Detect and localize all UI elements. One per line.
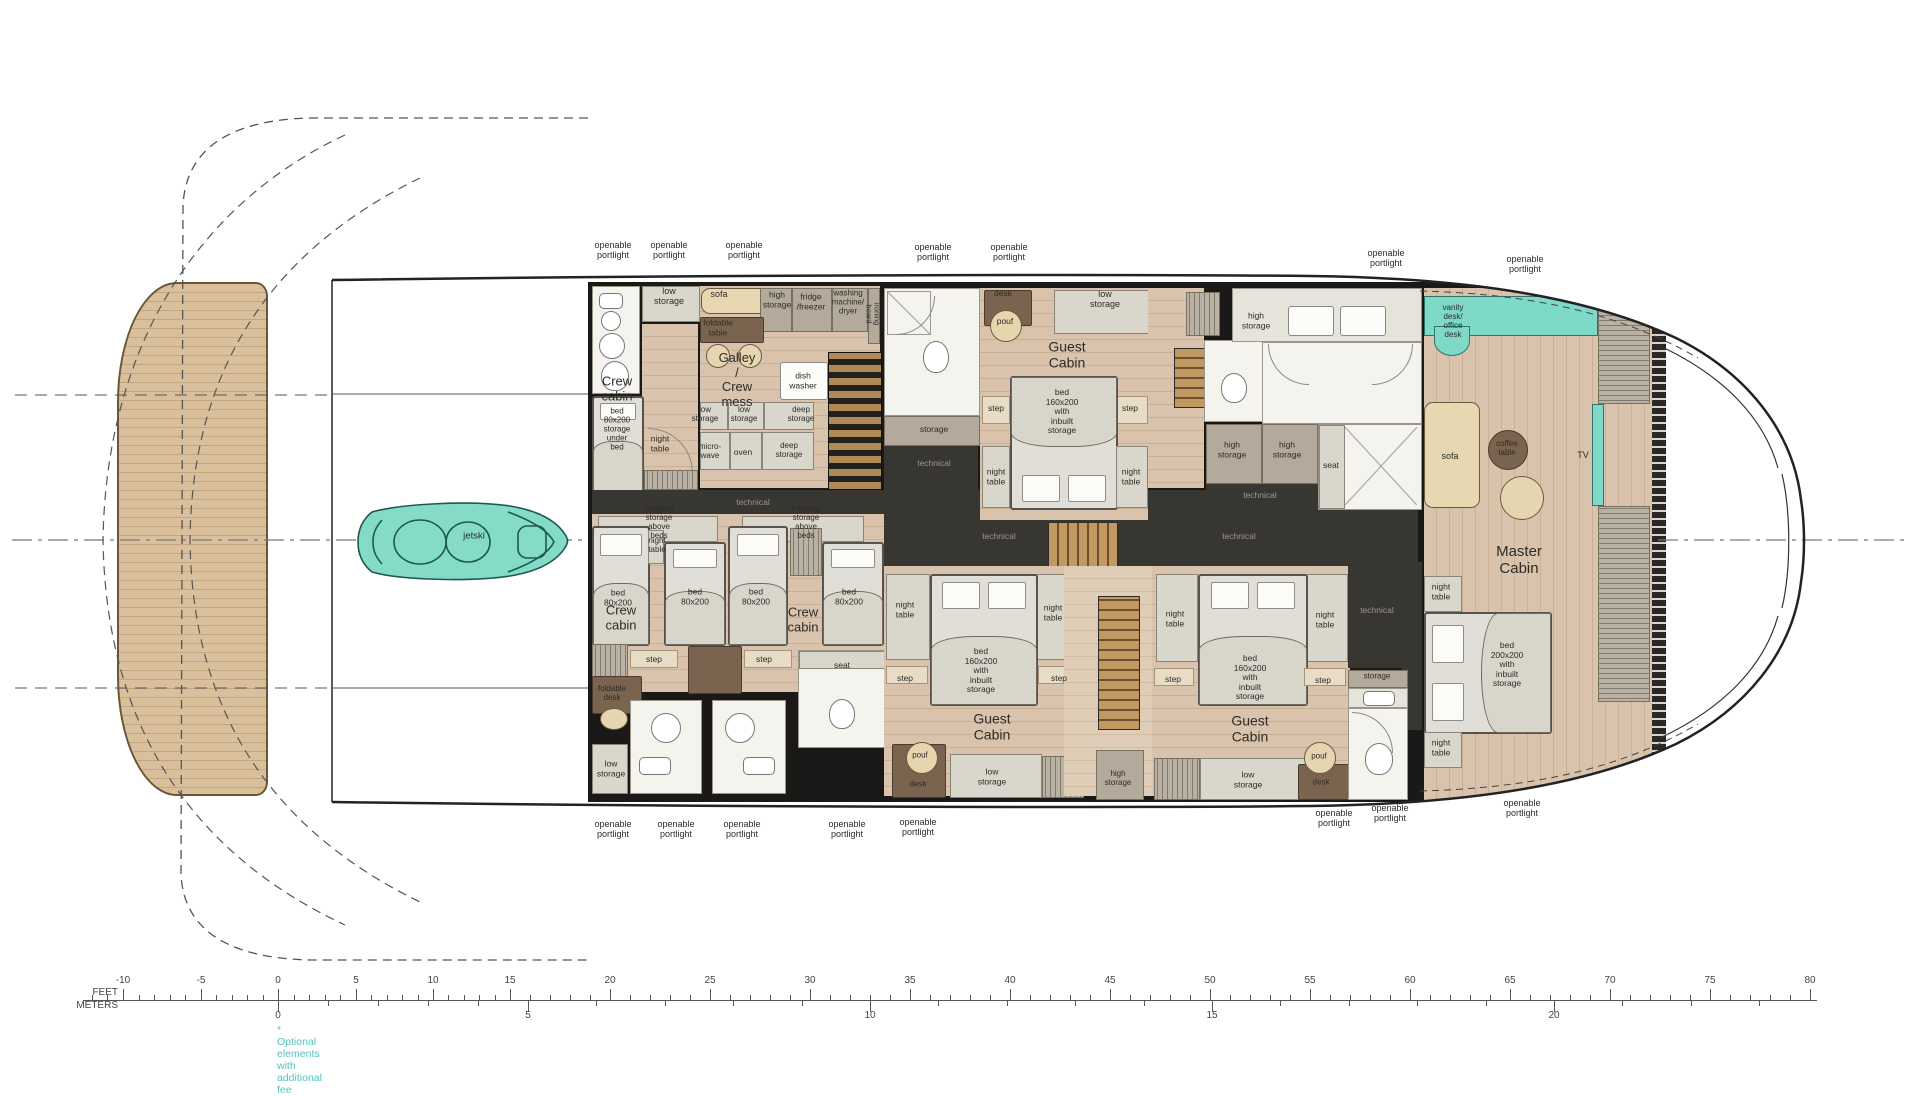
ruler-tick: [1486, 1001, 1487, 1006]
guest-br-pouf: [1304, 742, 1336, 774]
crew-bed-single-top: [592, 396, 644, 492]
ruler-tick: [387, 995, 388, 1000]
ruler-tick: [328, 1001, 329, 1006]
bottom-staircase: [1098, 596, 1140, 730]
ruler-tick: [910, 989, 911, 1000]
ruler-tick-label: -5: [197, 975, 206, 986]
hull-side-hatch: [1652, 324, 1666, 758]
ruler-tick: [1210, 989, 1211, 1000]
ruler-tick: [1691, 1001, 1692, 1006]
label-portlight-bottom-3: openable portlight: [723, 819, 760, 839]
ruler-tick: [278, 989, 279, 1000]
ruler-tick: [1280, 1001, 1281, 1006]
ruler-tick-label: 30: [804, 975, 815, 986]
ruler-tick: [970, 995, 971, 1000]
optional-note: * Optional elements with additional fee: [277, 1024, 322, 1096]
garage-lines: [332, 394, 588, 688]
ruler-tick: [1759, 1001, 1760, 1006]
ruler-tick: [1650, 995, 1651, 1000]
ruler-tick: [428, 1001, 429, 1006]
ruler-tick: [139, 995, 140, 1000]
ruler-tick: [630, 995, 631, 1000]
ruler-tick: [790, 995, 791, 1000]
ruler-tick: [216, 995, 217, 1000]
mid-wardrobe: [1186, 292, 1220, 336]
ruler-tick-label: 50: [1204, 975, 1215, 986]
galley-counter-1: [700, 402, 728, 430]
sink-counter-br: [1348, 688, 1408, 708]
storage-box-top: [884, 416, 980, 446]
ruler-tick: [263, 995, 264, 1000]
crew-wardrobe-mid: [790, 528, 822, 576]
ruler-tick: [378, 1001, 379, 1006]
day-head-wc: [1204, 340, 1264, 422]
technical-br: [1348, 566, 1406, 668]
guest-top-bed: [1010, 376, 1118, 510]
ruler-tick: [1770, 995, 1771, 1000]
ruler-tick: [1810, 989, 1811, 1000]
ruler-tick: [1330, 995, 1331, 1000]
deep-storage-box: [762, 432, 814, 470]
ruler-tick-label: 75: [1704, 975, 1715, 986]
master-sink-2: [1340, 306, 1386, 336]
crew-bathroom-top: [592, 286, 640, 394]
teak-swim-platform: [117, 282, 268, 796]
ruler-tick: [402, 995, 403, 1000]
ruler-tick-label: 5: [353, 975, 359, 986]
master-technical: [1206, 484, 1318, 566]
master-sofa: [1424, 402, 1480, 508]
galley-pouf-2: [738, 344, 762, 368]
step-band-crew-1: [630, 650, 678, 668]
ruler-tick-label: 10: [864, 1010, 875, 1021]
guest-bl-night-table-1: [886, 574, 930, 660]
ruler-tick: [479, 995, 480, 1000]
ruler-tick-label: 80: [1804, 975, 1815, 986]
ruler-tick: [1310, 989, 1311, 1000]
ruler-tick-label: 25: [704, 975, 715, 986]
ruler-tick: [1390, 995, 1391, 1000]
bow-chine-bottom: [1660, 616, 1778, 738]
high-storage-bottom-mid: [1096, 750, 1144, 800]
ruler-tick-label: 35: [904, 975, 915, 986]
ruler-tick: [170, 995, 171, 1000]
ruler-tick-label: 5: [525, 1010, 531, 1021]
ruler-tick: [938, 1001, 939, 1006]
ruler-tick: [690, 995, 691, 1000]
ruler-tick: [1010, 989, 1011, 1000]
step-band-crew-2: [744, 650, 792, 668]
label-portlight-top-3: openable portlight: [725, 240, 762, 260]
label-portlight-top-2: openable portlight: [650, 240, 687, 260]
guest-br-night-table-2: [1306, 574, 1348, 662]
ruler-tick: [325, 995, 326, 1000]
label-portlight-bottom-6: openable portlight: [1315, 808, 1352, 828]
vanity-chair: [1434, 326, 1470, 356]
ruler-tick: [770, 995, 771, 1000]
guest-br-bed: [1198, 574, 1308, 706]
master-high-storage-2: [1262, 424, 1318, 484]
ruler-tick: [1690, 995, 1691, 1000]
ruler-tick: [1350, 995, 1351, 1000]
galley-pouf-1: [706, 344, 730, 368]
ruler-tick: [590, 995, 591, 1000]
ruler-tick: [1090, 995, 1091, 1000]
ruler-tick: [309, 995, 310, 1000]
ruler-tick: [810, 989, 811, 1000]
oven-box: [730, 432, 762, 470]
ruler-tick: [1110, 989, 1111, 1000]
low-storage-box-bl: [592, 744, 628, 794]
ruler-tick: [1050, 995, 1051, 1000]
label-jetski: jetski: [463, 532, 485, 543]
ruler-tick: [1550, 995, 1551, 1000]
ruler-tick: [990, 995, 991, 1000]
master-shower: [1318, 424, 1422, 510]
technical-box-top: [884, 446, 978, 490]
guest-br-low-storage: [1200, 758, 1306, 800]
crew-wardrobe-top: [644, 470, 698, 490]
washing-machine-box: [832, 288, 868, 332]
step-band-bl-1: [886, 666, 928, 684]
ruler-tick: [950, 995, 951, 1000]
master-armchair: [1500, 476, 1544, 520]
ruler-tick: [890, 995, 891, 1000]
ruler-tick: [1470, 995, 1471, 1000]
crew-bathroom-a: [630, 700, 702, 794]
ruler-tick-label: 20: [604, 975, 615, 986]
ruler-tick: [1370, 995, 1371, 1000]
bow-tip-curve: [1782, 474, 1789, 608]
foldable-table-box: [700, 317, 764, 343]
ruler-tick: [1190, 995, 1191, 1000]
ruler-tick: [1250, 995, 1251, 1000]
ruler-tick: [1730, 995, 1731, 1000]
ruler-tick: [294, 995, 295, 1000]
label-portlight-top-5: openable portlight: [990, 242, 1027, 262]
ruler-tick: [1530, 995, 1531, 1000]
ruler-tick-label: 20: [1548, 1010, 1559, 1021]
ruler-tick: [1270, 995, 1271, 1000]
step-band-br-2: [1304, 668, 1346, 686]
crew-bed-4: [822, 542, 884, 646]
ruler-tick: [418, 995, 419, 1000]
ruler-tick: [1150, 995, 1151, 1000]
ruler-tick-label: 65: [1504, 975, 1515, 986]
step-band-gt-1: [982, 396, 1010, 424]
master-bed: [1424, 612, 1552, 734]
ruler-tick: [433, 989, 434, 1000]
low-storage-box-top: [642, 286, 700, 322]
ruler-tick: [1030, 995, 1031, 1000]
ironing-board-box: [868, 288, 880, 344]
jetski-drawing: [358, 503, 568, 579]
ruler-tick: [1417, 1001, 1418, 1006]
ruler-tick: [1710, 989, 1711, 1000]
ruler-tick: [850, 995, 851, 1000]
ruler-tick: [1070, 995, 1071, 1000]
ruler-tick-label: 15: [504, 975, 515, 986]
ruler-tick: [1130, 995, 1131, 1000]
ruler-tick: [750, 995, 751, 1000]
label-portlight-bottom-7: openable portlight: [1371, 803, 1408, 823]
step-band-br-1: [1154, 668, 1194, 686]
ruler-tick: [1230, 995, 1231, 1000]
ruler-tick: [92, 995, 93, 1000]
ruler-tick: [107, 995, 108, 1000]
galley-staircase: [828, 352, 882, 490]
ruler-tick-label: 0: [275, 975, 281, 986]
crew-shower-room: [798, 650, 886, 748]
ruler-tick: [530, 995, 531, 1000]
ruler-tick: [650, 995, 651, 1000]
bow-chine-top: [1660, 346, 1778, 468]
ruler-tick: [154, 995, 155, 1000]
dishwasher-box: [780, 362, 828, 400]
ruler-tick: [1490, 995, 1491, 1000]
feet-caption: FEET: [38, 987, 118, 998]
ruler-tick: [185, 995, 186, 1000]
guest-top-low-storage: [1054, 290, 1158, 334]
step-band-gt-2: [1116, 396, 1148, 424]
guest-top-night-table-1: [982, 446, 1010, 508]
master-sink-1: [1288, 306, 1334, 336]
ruler-tick: [665, 1001, 666, 1006]
label-portlight-bottom-5: openable portlight: [899, 817, 936, 837]
label-portlight-bottom-4: openable portlight: [828, 819, 865, 839]
ruler-tick: [1590, 995, 1591, 1000]
ruler-tick: [448, 995, 449, 1000]
microwave-box: [700, 432, 730, 470]
ruler-tick: [802, 1001, 803, 1006]
ruler-tick: [478, 1001, 479, 1006]
ruler-tick: [1075, 1001, 1076, 1006]
ruler-tick: [596, 1001, 597, 1006]
label-portlight-top-7: openable portlight: [1506, 254, 1543, 274]
ruler-line: [83, 1000, 1817, 1001]
crew-cupboard: [688, 646, 742, 694]
ruler-tick: [371, 995, 372, 1000]
label-portlight-top-6: openable portlight: [1367, 248, 1404, 268]
galley-counter-3: [764, 402, 814, 430]
crew-bed-1: [592, 526, 650, 646]
ruler-tick: [1510, 989, 1511, 1000]
ruler-tick: [247, 995, 248, 1000]
desk-stool: [600, 708, 628, 730]
crew-bathroom-b: [712, 700, 786, 794]
ruler-tick: [1170, 995, 1171, 1000]
label-portlight-bottom-2: openable portlight: [657, 819, 694, 839]
guest-bl-pouf: [906, 742, 938, 774]
crew-bed-3: [728, 526, 788, 646]
ruler-tick: [1349, 1001, 1350, 1006]
master-night-table-2: [1424, 732, 1462, 768]
ruler-tick: [1750, 995, 1751, 1000]
ruler-tick-label: 60: [1404, 975, 1415, 986]
label-portlight-top-4: openable portlight: [914, 242, 951, 262]
ruler-tick-label: -10: [116, 975, 130, 986]
ruler-tick: [610, 989, 611, 1000]
ruler-tick: [1670, 995, 1671, 1000]
ruler-tick: [670, 995, 671, 1000]
ruler-tick: [1790, 995, 1791, 1000]
ruler-tick: [201, 989, 202, 1000]
tv-panel: [1592, 404, 1604, 506]
meters-caption: METERS: [38, 1000, 118, 1011]
ruler-tick: [1622, 1001, 1623, 1006]
ruler-tick: [1410, 989, 1411, 1000]
ruler-tick: [495, 995, 496, 1000]
ruler-tick: [870, 995, 871, 1000]
guest-br-wardrobe: [1154, 758, 1200, 800]
ruler-tick: [1430, 995, 1431, 1000]
guest-top-pouf: [990, 310, 1022, 342]
ruler-tick: [730, 995, 731, 1000]
coffee-table-circle: [1488, 430, 1528, 470]
ruler-tick: [570, 995, 571, 1000]
ruler-tick: [1144, 1001, 1145, 1006]
guest-top-night-table-2: [1116, 446, 1148, 508]
yacht-deck-plan: openable portlightopenable portlightopen…: [0, 0, 1920, 1080]
ruler-tick-label: 70: [1604, 975, 1615, 986]
ruler-tick: [550, 995, 551, 1000]
ruler-tick: [830, 995, 831, 1000]
label-portlight-bottom-1: openable portlight: [594, 819, 631, 839]
master-high-storage-1: [1206, 424, 1262, 484]
galley-high-storage: [760, 288, 792, 332]
spine-stairs: [1048, 522, 1118, 568]
ruler-tick: [733, 1001, 734, 1006]
ruler-tick: [232, 995, 233, 1000]
ruler-tick: [340, 995, 341, 1000]
ruler-tick: [510, 989, 511, 1000]
guest-bl-bed: [930, 574, 1038, 706]
ruler-tick: [123, 989, 124, 1000]
ruler-tick: [356, 989, 357, 1000]
master-wardrobe-bottom: [1598, 506, 1650, 702]
storage-br-box: [1348, 670, 1408, 688]
ruler-tick-label: 55: [1304, 975, 1315, 986]
fridge-freezer-box: [792, 288, 832, 332]
ruler-tick: [464, 995, 465, 1000]
guest-br-night-table-1: [1156, 574, 1198, 662]
galley-counter-2: [728, 402, 764, 430]
ruler-tick-label: 0: [275, 1010, 281, 1021]
ruler-tick-label: 40: [1004, 975, 1015, 986]
crew-night-table: [648, 530, 664, 564]
crew-bed-2: [664, 542, 726, 646]
master-wardrobe-top: [1598, 296, 1650, 404]
ruler-tick-label: 15: [1206, 1010, 1217, 1021]
ruler-tick: [1630, 995, 1631, 1000]
ruler-tick-label: 10: [427, 975, 438, 986]
ruler-tick: [1290, 995, 1291, 1000]
label-portlight-top-1: openable portlight: [594, 240, 631, 260]
ruler-tick: [1007, 1001, 1008, 1006]
ruler-tick: [1570, 995, 1571, 1000]
ruler-tick: [930, 995, 931, 1000]
master-night-table-1: [1424, 576, 1462, 612]
guest-bl-low-storage: [950, 754, 1042, 798]
ruler-tick: [710, 989, 711, 1000]
ruler-tick-label: 45: [1104, 975, 1115, 986]
ruler-tick: [1610, 989, 1611, 1000]
ruler-tick: [1450, 995, 1451, 1000]
